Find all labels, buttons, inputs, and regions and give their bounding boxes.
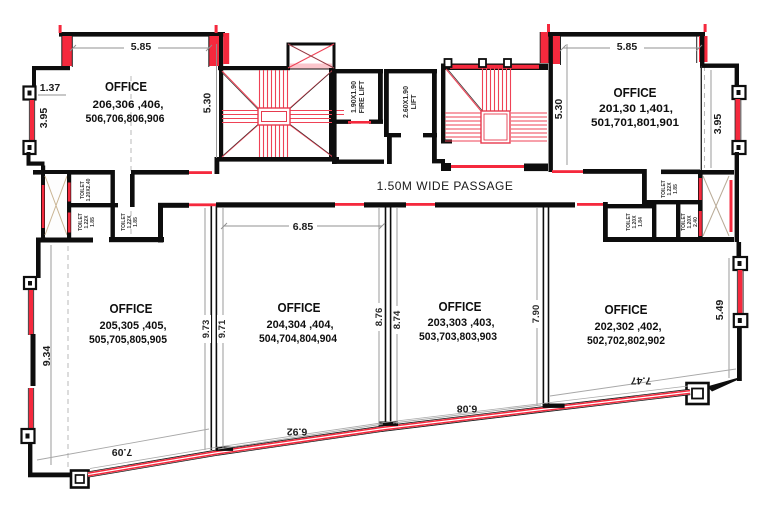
svg-text:1.85: 1.85 [90, 217, 96, 227]
svg-text:3.95: 3.95 [712, 114, 724, 135]
svg-text:5.49: 5.49 [714, 300, 726, 321]
svg-text:2.40: 2.40 [693, 217, 699, 227]
svg-text:OFFICE: OFFICE [110, 301, 153, 316]
svg-text:505,705,805,905: 505,705,805,905 [89, 334, 167, 346]
svg-text:1.20X2.40: 1.20X2.40 [86, 178, 92, 201]
svg-text:2.60X1.90: 2.60X1.90 [403, 86, 410, 118]
svg-text:7.90: 7.90 [531, 305, 542, 324]
svg-text:205,305 ,405,: 205,305 ,405, [100, 320, 167, 332]
svg-text:202,302 ,402,: 202,302 ,402, [595, 321, 662, 333]
svg-text:OFFICE: OFFICE [105, 79, 147, 94]
svg-text:OFFICE: OFFICE [614, 85, 657, 100]
svg-text:5.30: 5.30 [202, 93, 214, 114]
svg-text:504,704,804,904: 504,704,804,904 [259, 333, 338, 345]
svg-text:502,702,802,902: 502,702,802,902 [587, 335, 665, 347]
svg-text:9.71: 9.71 [217, 319, 228, 338]
svg-text:5.85: 5.85 [131, 41, 152, 53]
svg-text:FIRE LIFT: FIRE LIFT [359, 80, 366, 113]
svg-text:OFFICE: OFFICE [605, 302, 648, 317]
svg-text:1.50M WIDE PASSAGE: 1.50M WIDE PASSAGE [377, 179, 514, 193]
svg-text:1.85: 1.85 [133, 217, 139, 227]
svg-text:9.73: 9.73 [201, 320, 212, 339]
svg-text:503,703,803,903: 503,703,803,903 [419, 331, 497, 343]
svg-text:7.09: 7.09 [112, 446, 133, 458]
svg-text:8.76: 8.76 [374, 308, 385, 327]
svg-text:1.84: 1.84 [638, 217, 644, 227]
svg-text:6.08: 6.08 [457, 403, 478, 415]
svg-text:3.95: 3.95 [38, 108, 50, 129]
svg-text:OFFICE: OFFICE [278, 300, 321, 315]
svg-text:501,701,801,901: 501,701,801,901 [591, 117, 679, 129]
svg-text:1.90X1.90: 1.90X1.90 [351, 81, 358, 113]
svg-text:5.30: 5.30 [553, 99, 565, 120]
svg-text:201,30 1,401,: 201,30 1,401, [599, 103, 673, 115]
svg-text:5.85: 5.85 [617, 41, 638, 53]
svg-text:8.74: 8.74 [392, 310, 403, 329]
svg-text:6.85: 6.85 [293, 221, 314, 233]
svg-text:204,304 ,404,: 204,304 ,404, [267, 319, 334, 331]
svg-text:206,306 ,406,: 206,306 ,406, [93, 99, 164, 111]
svg-text:1.85: 1.85 [673, 184, 679, 194]
svg-text:OFFICE: OFFICE [439, 299, 482, 314]
svg-text:7.47: 7.47 [631, 375, 652, 387]
svg-text:1.37: 1.37 [40, 82, 61, 94]
svg-text:LIFT: LIFT [411, 94, 418, 109]
svg-text:506,706,806,906: 506,706,806,906 [86, 113, 165, 125]
svg-text:203,303 ,403,: 203,303 ,403, [428, 317, 495, 329]
svg-text:9.34: 9.34 [41, 346, 53, 367]
svg-text:6.92: 6.92 [287, 426, 308, 438]
